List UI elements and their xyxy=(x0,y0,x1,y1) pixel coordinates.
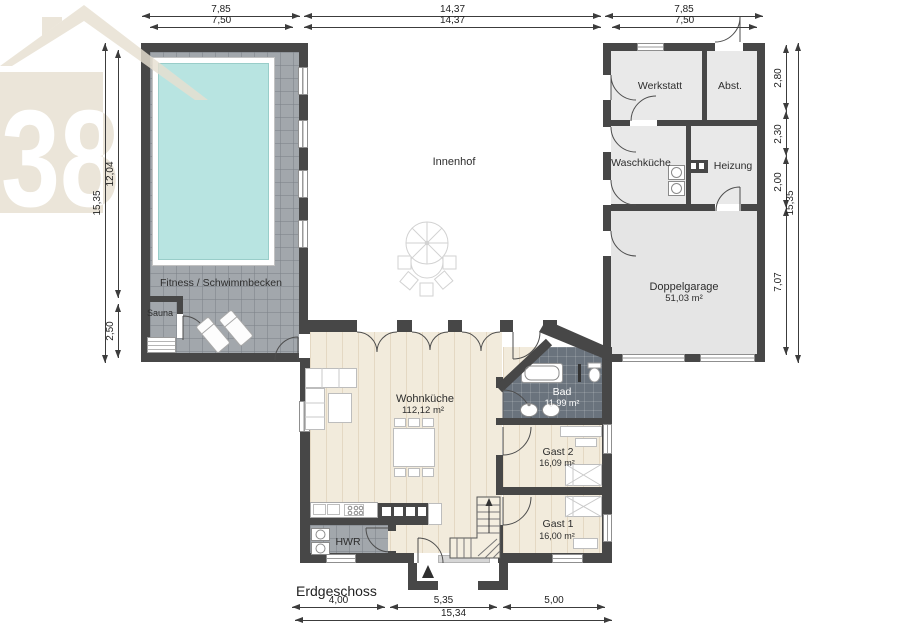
room-label-werkstatt: Werkstatt xyxy=(615,80,705,92)
room-area-wohnkueche: 112,12 m² xyxy=(361,406,485,417)
dim-left-upper: 12,04 xyxy=(99,50,123,298)
room-label-waschkueche: Waschküche xyxy=(599,157,683,169)
room-area-doppelgarage: 51,03 m² xyxy=(628,294,740,305)
plan-linework xyxy=(0,0,900,636)
room-label-wohnkueche: Wohnküche xyxy=(363,393,487,406)
floor-plan: 38 38 xyxy=(0,0,900,636)
tub-inner xyxy=(525,366,559,380)
courtyard-table-set xyxy=(398,222,456,296)
room-label-doppelgarage: Doppelgarage xyxy=(628,281,740,294)
room-label-abst: Abst. xyxy=(703,80,757,92)
room-label-bad: Bad xyxy=(530,386,594,398)
toilet-bowl xyxy=(589,368,600,382)
dim-bottom-total: 15,34 xyxy=(295,611,612,624)
dim-left-lower: 2,50 xyxy=(99,304,123,358)
dim-top-inner-right: 7,50 xyxy=(612,18,757,31)
dim-top-inner-mid: 14,37 xyxy=(304,18,601,31)
room-label-gast1: Gast 1 xyxy=(527,518,589,530)
room-label-gast2: Gast 2 xyxy=(527,446,589,458)
fixtures xyxy=(316,168,682,554)
room-area-bad: 11,99 m² xyxy=(524,398,600,408)
toilet-tank xyxy=(588,363,601,368)
washer-drum xyxy=(672,184,682,194)
dim-right-outer: 15,35 xyxy=(779,43,803,363)
room-label-innenhof: Innenhof xyxy=(408,156,500,169)
room-area-gast1: 16,00 m² xyxy=(524,531,590,541)
lounge-chairs xyxy=(196,310,253,353)
room-area-gast2: 16,09 m² xyxy=(524,458,590,468)
room-label-fitness: Fitness / Schwimmbecken xyxy=(145,277,297,289)
room-label-sauna: Sauna xyxy=(142,308,178,318)
dim-top-inner-left: 7,50 xyxy=(150,18,293,31)
floor-title: Erdgeschoss xyxy=(296,583,377,599)
room-label-hwr: HWR xyxy=(322,536,374,548)
room-label-heizung: Heizung xyxy=(697,160,769,172)
diagonal-wall xyxy=(539,320,612,362)
staircase xyxy=(450,497,500,558)
entrance-arrow xyxy=(422,565,434,578)
